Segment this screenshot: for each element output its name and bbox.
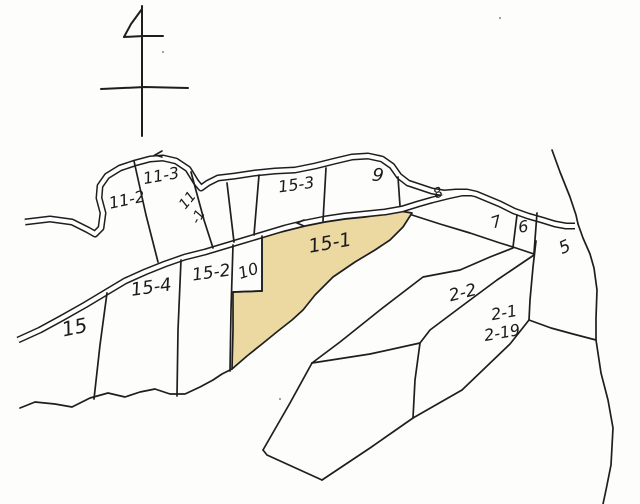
- parcel-label-15-2: 15-2: [191, 260, 232, 285]
- parcel-label-15-4: 15-4: [130, 274, 173, 300]
- north-arrow-line-2: [124, 9, 142, 37]
- parcel-label-15: 15: [60, 313, 90, 342]
- paper-speck-2: [279, 398, 281, 400]
- edge-right-lower: [578, 224, 613, 504]
- edge-right-upper: [552, 150, 578, 224]
- divider-153-left: [254, 175, 259, 235]
- parcel-label-9: 9: [371, 164, 385, 186]
- parcel-label-2-2: 2-2: [447, 280, 479, 306]
- north-arrow-line-3: [124, 36, 163, 37]
- edge-polygon-top: [312, 343, 420, 363]
- parcel-label-11-3: 11-3: [142, 163, 181, 188]
- edge-coast-wavy: [20, 369, 232, 408]
- road-tick-upper: [155, 151, 162, 157]
- north-arrow-line-1: [101, 87, 188, 89]
- divider-9-right: [398, 177, 400, 206]
- parcel-label-11-2: 11-2: [107, 187, 146, 213]
- parcel-label-15-3: 15-3: [277, 173, 316, 197]
- paper-speck-0: [162, 51, 164, 53]
- divider-111-right: [227, 183, 234, 242]
- divider-15-154: [94, 293, 107, 399]
- paper-speck-1: [499, 17, 501, 19]
- edge-polygon-se: [322, 418, 413, 480]
- parcel-label-2-19: 2-19: [483, 320, 522, 345]
- edge-2-1-left: [413, 343, 420, 418]
- edge-polygon-bottom: [263, 450, 322, 480]
- cadastral-map-page: 11-211-311-115-39876515-115-21015-4152-2…: [0, 0, 640, 504]
- edge-10-bottom: [233, 291, 262, 292]
- cadastral-map: 11-211-311-115-39876515-115-21015-4152-2…: [0, 0, 640, 504]
- parcel-label-10: 10: [236, 259, 261, 283]
- divider-153-9: [323, 168, 326, 221]
- parcel-label-7: 7: [489, 211, 505, 232]
- edge-polygon-left: [263, 363, 312, 450]
- edge-5-bottom: [529, 320, 596, 340]
- divider-154-152: [177, 260, 181, 396]
- parcel-label-5: 5: [556, 236, 574, 259]
